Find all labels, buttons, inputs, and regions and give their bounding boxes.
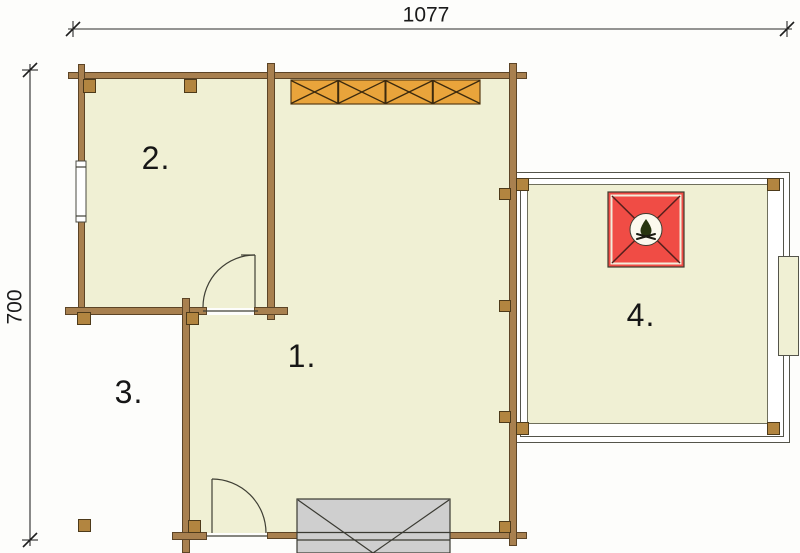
wall-top — [68, 72, 527, 79]
post-room4-top-left — [516, 178, 529, 191]
wall-left — [78, 64, 85, 315]
room-2-floor — [85, 79, 267, 308]
wall-bottom — [267, 532, 527, 539]
wall-porch-divider — [182, 298, 190, 553]
wall-divider-cap — [254, 307, 288, 315]
post-porch-top-left — [77, 312, 91, 325]
room-1-floor-extension — [190, 315, 275, 533]
post-room1-bottom-right — [499, 521, 511, 533]
floor-plan-canvas: 2. 1. 3. 4. 1077 700 — [0, 0, 800, 553]
post-porch-bottom-left — [78, 519, 91, 532]
room-1-floor — [275, 79, 509, 533]
post-room4-top-right — [767, 178, 780, 191]
post-room4-bottom-right — [767, 422, 780, 435]
post-room1-right-upper — [499, 188, 511, 200]
post-porch-bottom-right — [188, 520, 201, 533]
wall-divider-room1-room2 — [267, 63, 275, 320]
room-2-label: 2. — [142, 142, 171, 174]
post-room1-right-middle — [499, 300, 511, 312]
room-4-label: 4. — [627, 299, 656, 331]
dimension-width-label: 1077 — [403, 5, 450, 26]
post-room1-right-lower — [499, 411, 511, 423]
dimension-height-label: 700 — [5, 289, 26, 324]
room-3-label: 3. — [115, 376, 144, 408]
room-1-label: 1. — [288, 340, 317, 372]
post-room4-bottom-left — [516, 422, 529, 435]
post-room2-top-left — [83, 79, 96, 93]
wall-porch-cap — [172, 532, 207, 540]
post-room2-top-right — [184, 79, 197, 93]
room-4-side-step — [778, 256, 799, 356]
post-porch-top-right — [186, 312, 199, 325]
